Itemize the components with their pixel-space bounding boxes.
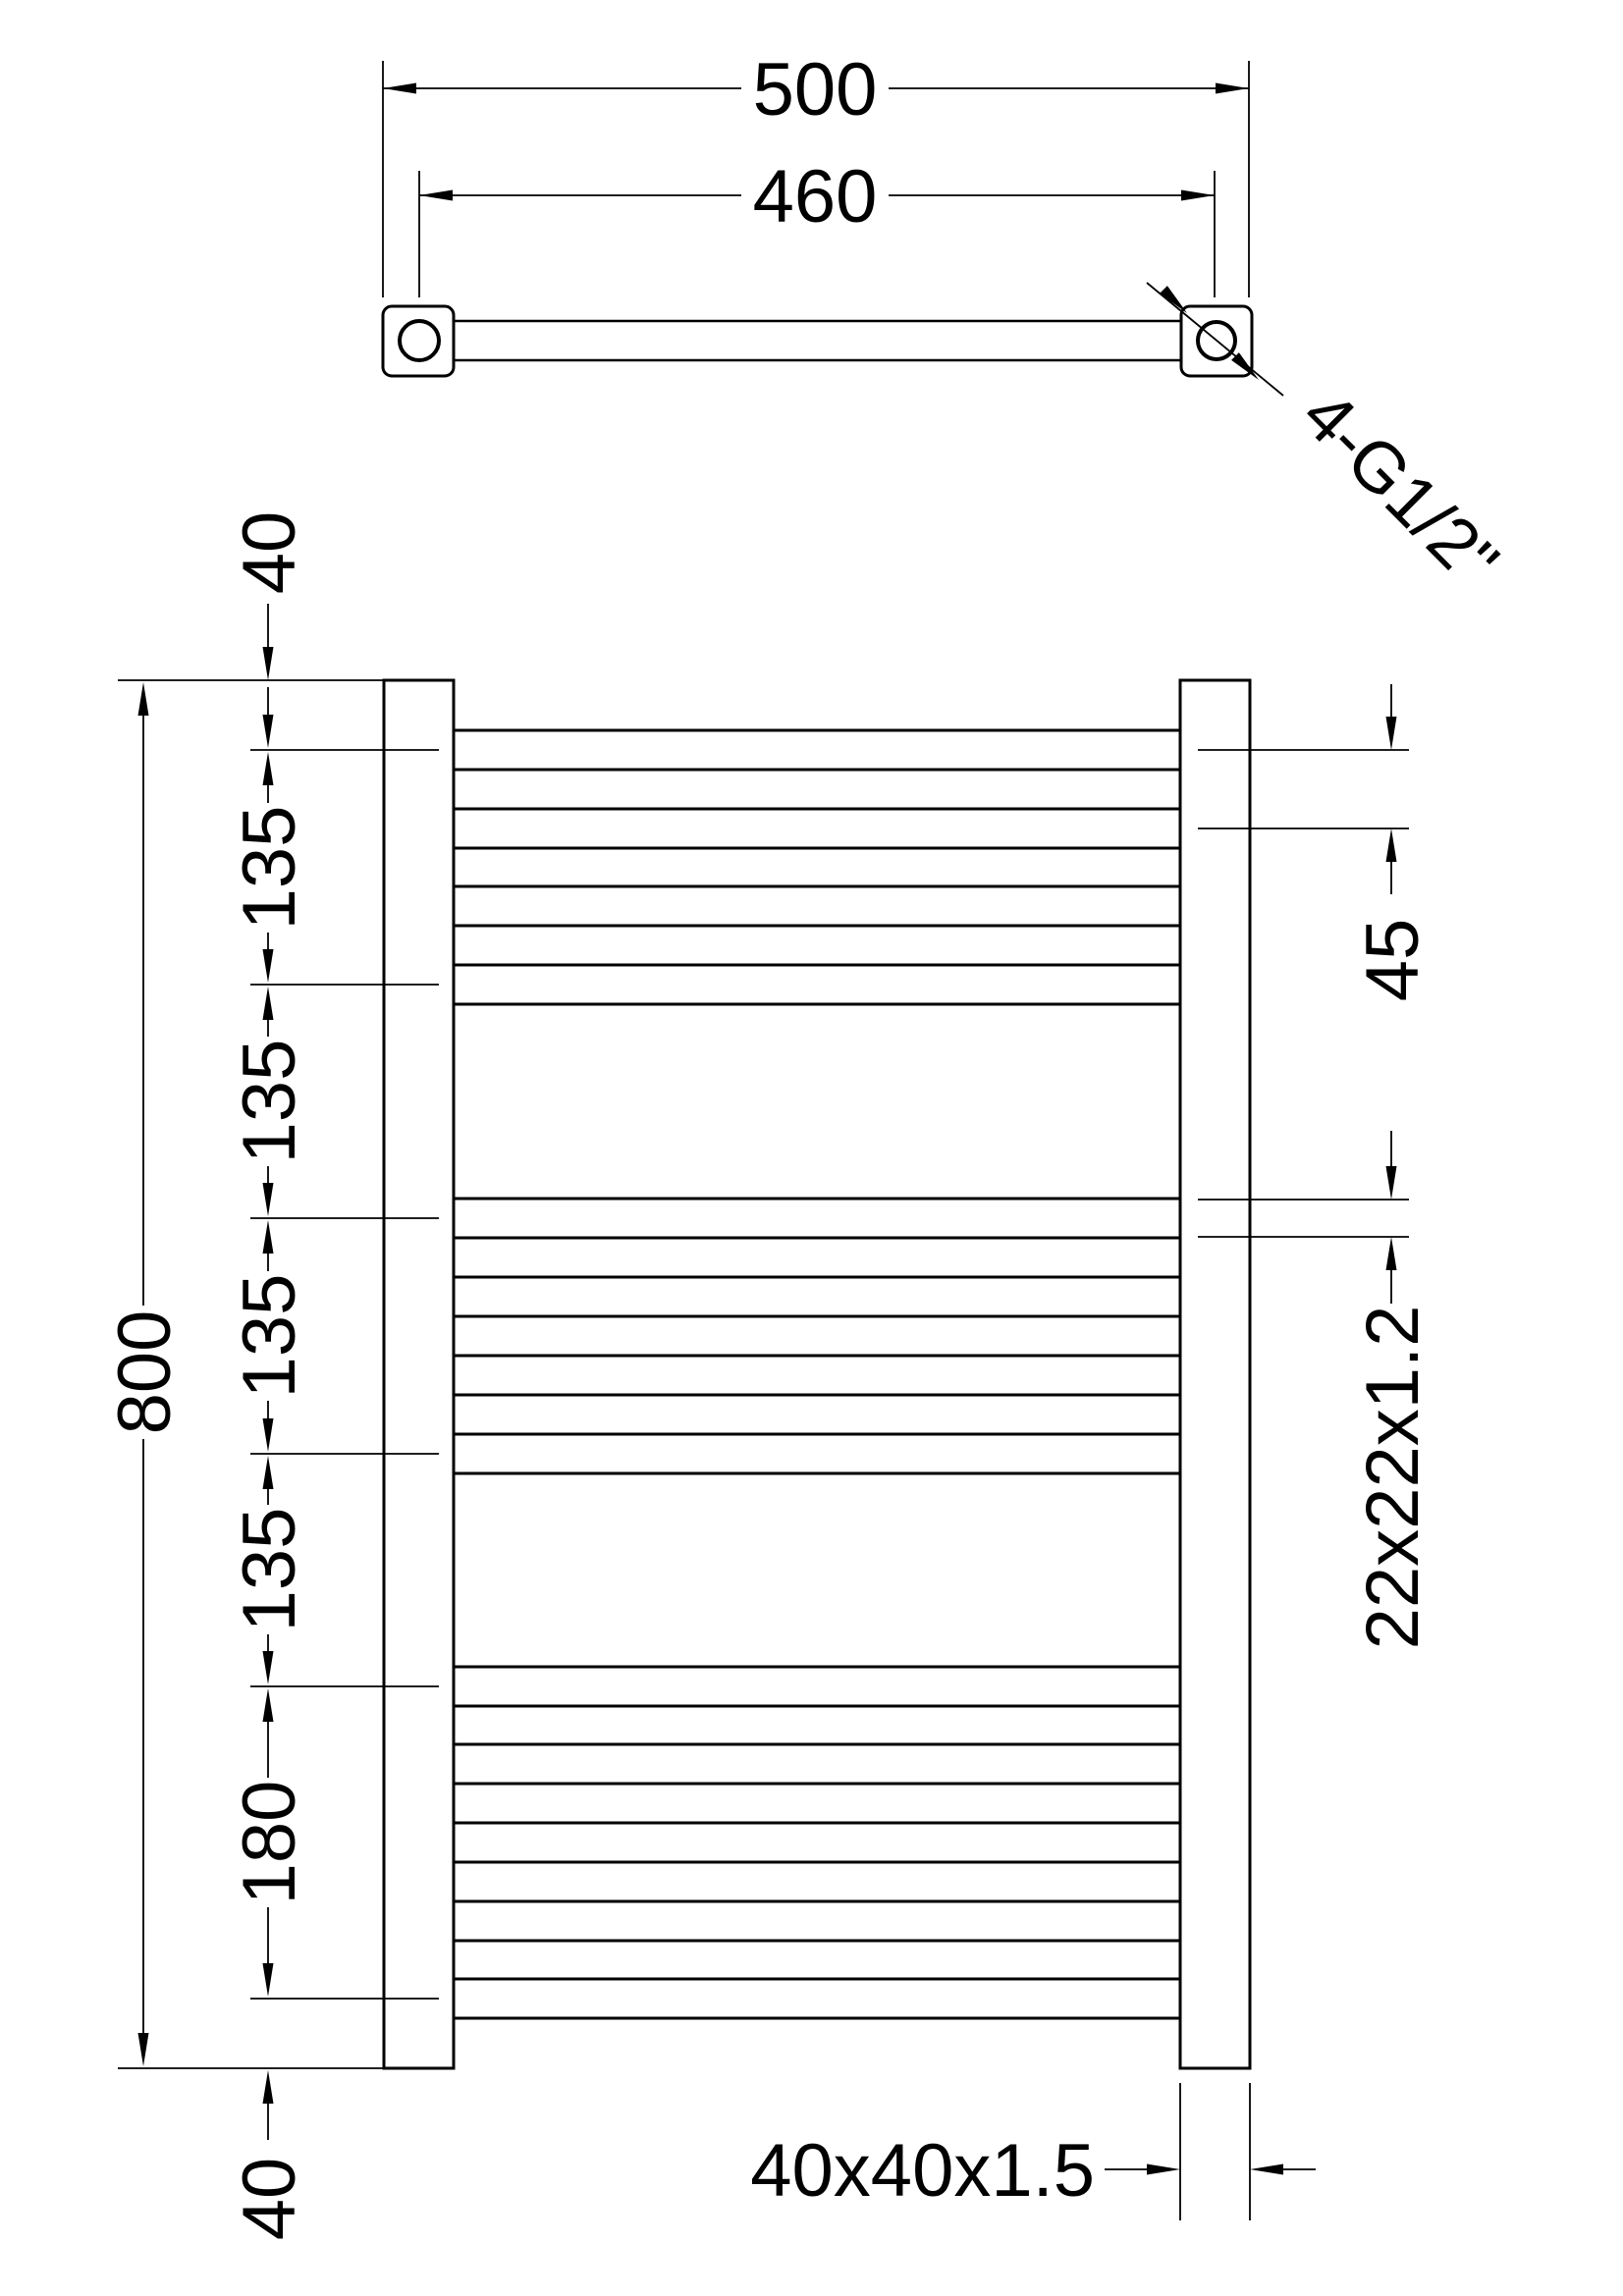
dim-chain-135-4: 135: [228, 1508, 311, 1632]
arrowhead: [1386, 1166, 1397, 1200]
arrowhead: [263, 987, 274, 1020]
arrowhead: [263, 1183, 274, 1216]
dim-overall-height: 800: [103, 1310, 187, 1435]
arrowhead: [138, 682, 149, 716]
rungs: [454, 730, 1180, 2018]
arrowhead: [383, 83, 416, 94]
arrowhead: [263, 949, 274, 983]
arrowhead: [263, 1418, 274, 1452]
connection-hole-left: [400, 321, 439, 360]
front-view: 800 40 135 135 135 135 180 40 45 22x22x1…: [103, 511, 1434, 2241]
wall-bracket-left: [383, 306, 454, 376]
dim-chain-180: 180: [228, 1781, 311, 1905]
arrowhead: [1386, 717, 1397, 750]
thread-callout: 4-G1/2": [1287, 376, 1513, 602]
arrowhead: [1160, 286, 1187, 313]
arrowhead: [263, 715, 274, 748]
arrowhead: [1250, 2164, 1283, 2175]
dim-chain-40-bottom: 40: [228, 2158, 311, 2241]
leader-line: [1147, 283, 1283, 396]
radiator-post-right: [1180, 680, 1250, 2068]
radiator-post-left: [384, 680, 454, 2068]
arrowhead: [263, 2070, 274, 2104]
arrowhead: [138, 2033, 149, 2066]
arrowhead: [263, 647, 274, 680]
arrowhead: [263, 1688, 274, 1722]
dim-tube-section: 22x22x1.2: [1351, 1306, 1434, 1650]
arrowhead: [1386, 828, 1397, 862]
dim-chain-135-2: 135: [228, 1040, 311, 1164]
dim-overall-width: 500: [753, 48, 878, 132]
drawing-canvas: 500 460 4-G1/2" 800 40 135 135 135 135: [0, 0, 1623, 2296]
arrowhead: [1181, 190, 1215, 201]
arrowhead: [1216, 83, 1249, 94]
dim-post-section: 40x40x1.5: [750, 2129, 1095, 2213]
dim-rung-pitch: 45: [1351, 919, 1434, 1002]
arrowhead: [1386, 1237, 1397, 1270]
dim-chain-135-3: 135: [228, 1274, 311, 1399]
arrowhead: [263, 752, 274, 785]
dim-mounting-spacing: 460: [753, 155, 878, 239]
arrowhead: [263, 1456, 274, 1489]
arrowhead: [1147, 2164, 1180, 2175]
top-view: 500 460 4-G1/2": [383, 48, 1513, 602]
arrowhead: [263, 1220, 274, 1254]
dim-chain-135-1: 135: [228, 806, 311, 931]
arrowhead: [419, 190, 453, 201]
arrowhead: [263, 1963, 274, 1997]
technical-drawing: 500 460 4-G1/2" 800 40 135 135 135 135: [0, 0, 1623, 2296]
arrowhead: [263, 1651, 274, 1684]
dim-chain-40-top: 40: [228, 511, 311, 595]
